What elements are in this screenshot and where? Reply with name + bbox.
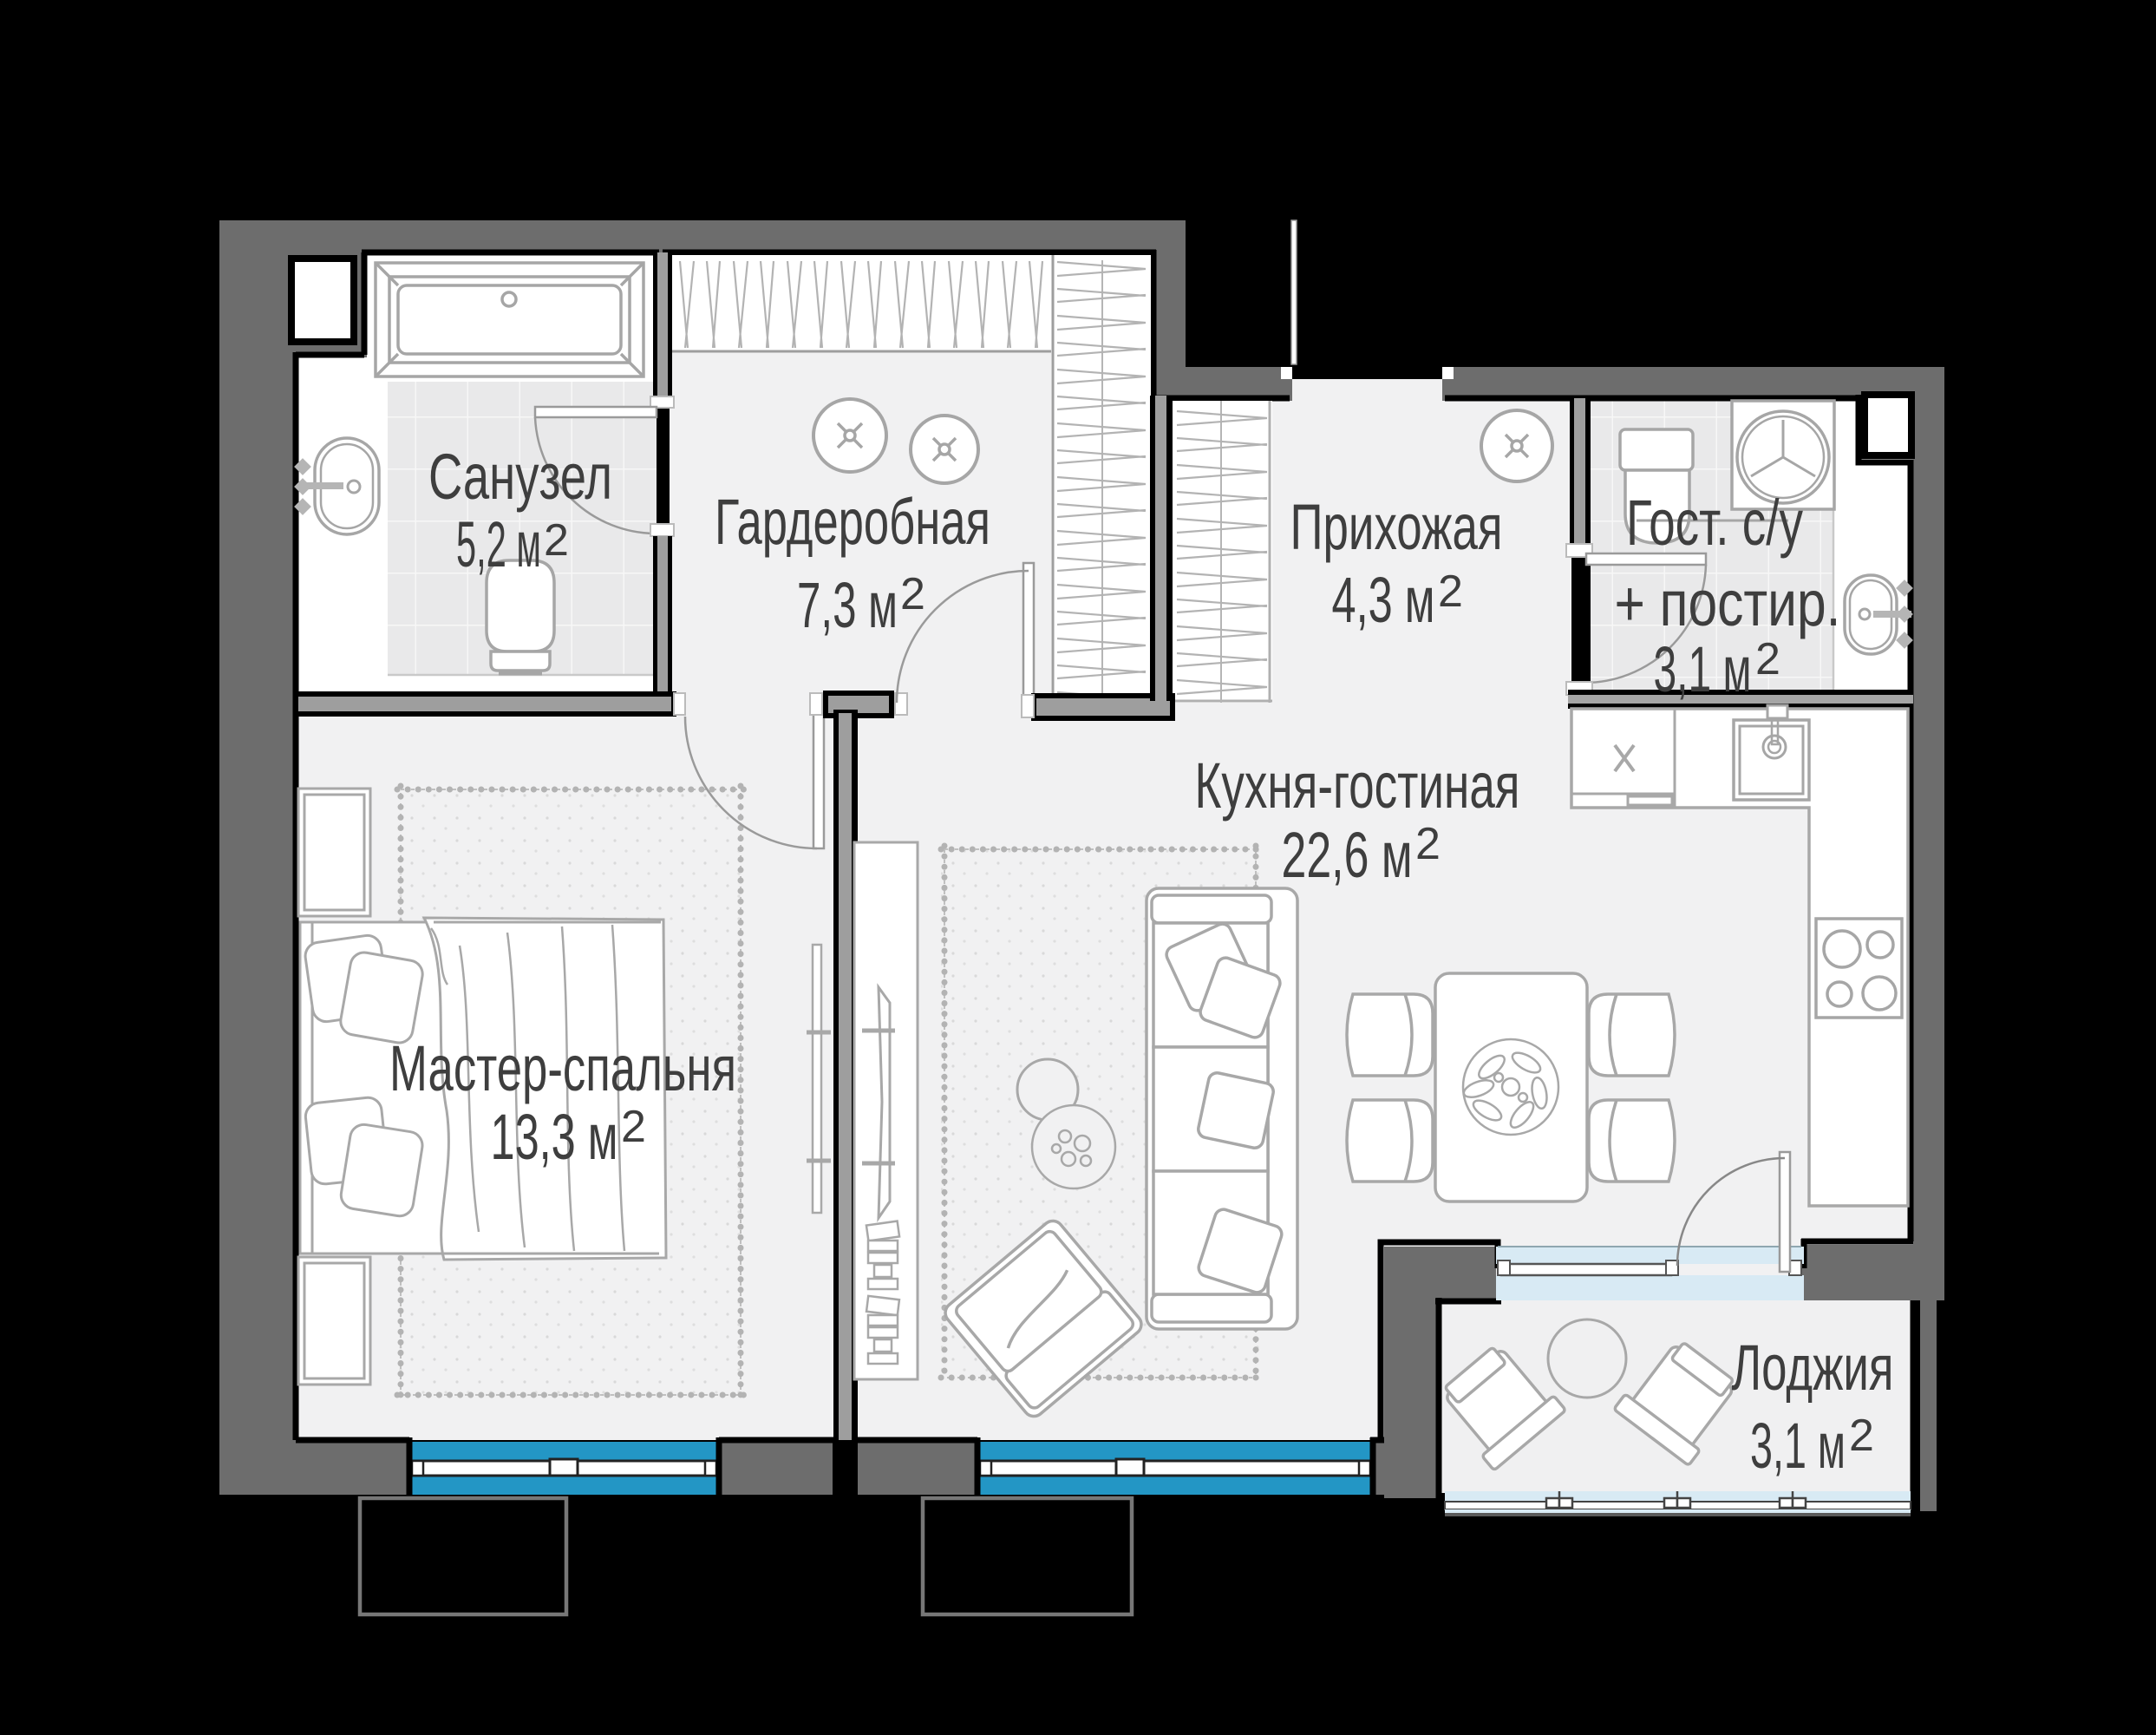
svg-text:13,3 м: 13,3 м [491,1101,618,1173]
svg-text:4,3 м: 4,3 м [1332,564,1435,636]
svg-text:5,2 м: 5,2 м [456,508,541,580]
svg-text:Лоджия: Лоджия [1732,1332,1894,1404]
svg-text:2: 2 [900,569,925,619]
svg-text:Гост. с/у: Гост. с/у [1626,487,1803,559]
svg-text:2: 2 [1415,819,1441,869]
svg-text:2: 2 [1849,1411,1874,1461]
svg-text:Санузел: Санузел [428,441,612,513]
svg-text:Прихожая: Прихожая [1290,491,1503,563]
svg-text:3,1 м: 3,1 м [1750,1410,1846,1482]
svg-text:3,1 м: 3,1 м [1654,633,1752,705]
svg-text:Мастер-спальня: Мастер-спальня [389,1032,736,1104]
svg-text:2: 2 [544,515,569,566]
svg-text:7,3 м: 7,3 м [797,569,898,641]
svg-text:Кухня-гостиная: Кухня-гостиная [1195,750,1520,822]
svg-text:Гардеробная: Гардеробная [715,486,990,558]
svg-text:2: 2 [1438,566,1463,617]
svg-text:+ постир.: + постир. [1615,567,1841,639]
svg-text:22,6 м: 22,6 м [1282,819,1413,891]
svg-text:2: 2 [621,1102,646,1152]
svg-text:2: 2 [1755,634,1780,684]
